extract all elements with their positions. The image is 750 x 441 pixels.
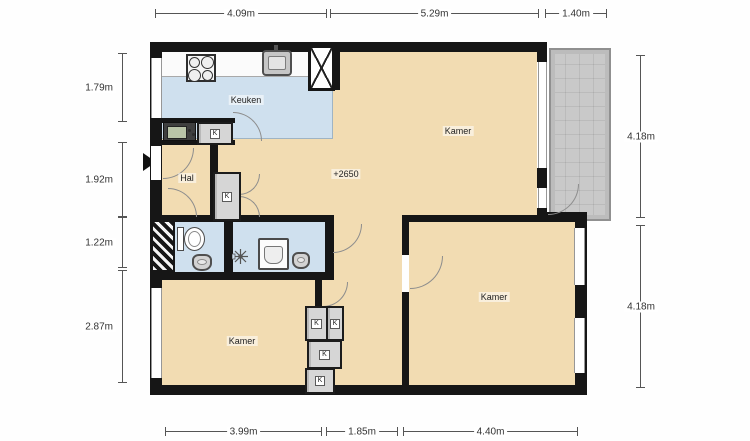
dimension-left-4: 2.87m — [122, 270, 123, 383]
room-label-hal: Hal — [178, 173, 196, 183]
closet: K — [213, 172, 241, 221]
dimension-left-1: 1.79m — [122, 53, 123, 122]
wall — [150, 272, 332, 280]
wall — [402, 222, 409, 255]
boiler-knob — [188, 129, 191, 132]
room-label-kamer-bottom-right: Kamer — [479, 292, 510, 302]
shaft-icon — [308, 45, 335, 91]
dimension-label: 4.18m — [624, 131, 658, 142]
stove-icon — [186, 54, 216, 82]
wall — [402, 215, 587, 222]
window — [151, 58, 162, 118]
dimension-top-1: 4.09m — [155, 13, 327, 14]
dimension-label: 4.40m — [474, 427, 508, 438]
dimension-right-1: 4.18m — [640, 55, 641, 218]
window — [151, 288, 162, 378]
closet-label: K — [319, 350, 330, 360]
burner — [202, 70, 213, 81]
toilet-icon — [184, 227, 205, 251]
dimension-label: 3.99m — [227, 427, 261, 438]
washbasin-icon — [192, 254, 212, 271]
washbasin-inner — [297, 257, 305, 263]
window — [574, 228, 585, 285]
dimension-bottom-2: 1.85m — [326, 431, 398, 432]
dimension-right-2: 4.18m — [640, 225, 641, 388]
dimension-left-2: 1.92m — [122, 142, 123, 217]
closet-label: K — [222, 192, 233, 202]
wall — [537, 168, 547, 188]
washbasin-inner — [197, 259, 207, 265]
closet: K — [197, 122, 233, 145]
wall — [537, 52, 547, 62]
floor-level-label: +2650 — [331, 169, 360, 179]
room-label-kamer-top: Kamer — [443, 126, 474, 136]
boiler-panel — [167, 126, 187, 139]
dimension-top-3: 1.40m — [545, 13, 607, 14]
toilet-tank-icon — [177, 227, 184, 251]
shower-icon — [232, 248, 249, 265]
dimension-label: 4.09m — [224, 9, 258, 20]
dimension-bottom-3: 4.40m — [403, 431, 578, 432]
closet: K — [305, 368, 335, 394]
duct-icon — [151, 220, 175, 272]
dimension-label: 1.22m — [82, 237, 116, 248]
dimension-label: 1.40m — [559, 9, 593, 20]
closet-label: K — [330, 319, 341, 329]
burner — [189, 57, 200, 68]
closet: K — [326, 306, 344, 341]
closet-label: K — [315, 376, 326, 386]
balcony-door-glass — [538, 188, 547, 208]
closet: K — [305, 306, 328, 341]
dimension-left-3: 1.22m — [122, 217, 123, 268]
wall — [152, 42, 547, 52]
dimension-label: 1.85m — [345, 427, 379, 438]
room-label-kamer-bottom-left: Kamer — [227, 336, 258, 346]
sink-basin — [268, 56, 286, 70]
dimension-label: 4.18m — [624, 301, 658, 312]
toilet-bowl-inner — [188, 231, 201, 247]
room-kamer-bottom-right — [409, 222, 575, 385]
boiler-knob — [192, 133, 195, 136]
closet-label: K — [311, 319, 322, 329]
dimension-label: 1.92m — [82, 174, 116, 185]
burner — [188, 69, 201, 82]
room-label-keuken: Keuken — [229, 95, 264, 105]
washbasin-icon — [292, 252, 310, 269]
bathtub-inner — [264, 246, 283, 264]
dimension-label: 1.79m — [82, 82, 116, 93]
floor-plan: 4.09m 5.29m 1.40m 3.99m 1.85m 4.40m 1.79… — [0, 0, 750, 441]
wall — [150, 385, 587, 395]
window — [538, 62, 547, 168]
room-kamer-bottom-left — [162, 280, 322, 385]
burner — [201, 56, 214, 69]
window — [574, 318, 585, 373]
closet: K — [307, 340, 342, 369]
entrance-door-opening — [151, 146, 161, 180]
wall — [402, 292, 409, 395]
closet-label: K — [210, 129, 221, 139]
boiler-icon — [163, 122, 196, 141]
dimension-label: 5.29m — [418, 9, 452, 20]
bathtub-icon — [258, 238, 289, 270]
dimension-label: 2.87m — [82, 321, 116, 332]
sink-icon — [262, 50, 292, 76]
dimension-top-2: 5.29m — [330, 13, 539, 14]
dimension-bottom-1: 3.99m — [165, 431, 322, 432]
